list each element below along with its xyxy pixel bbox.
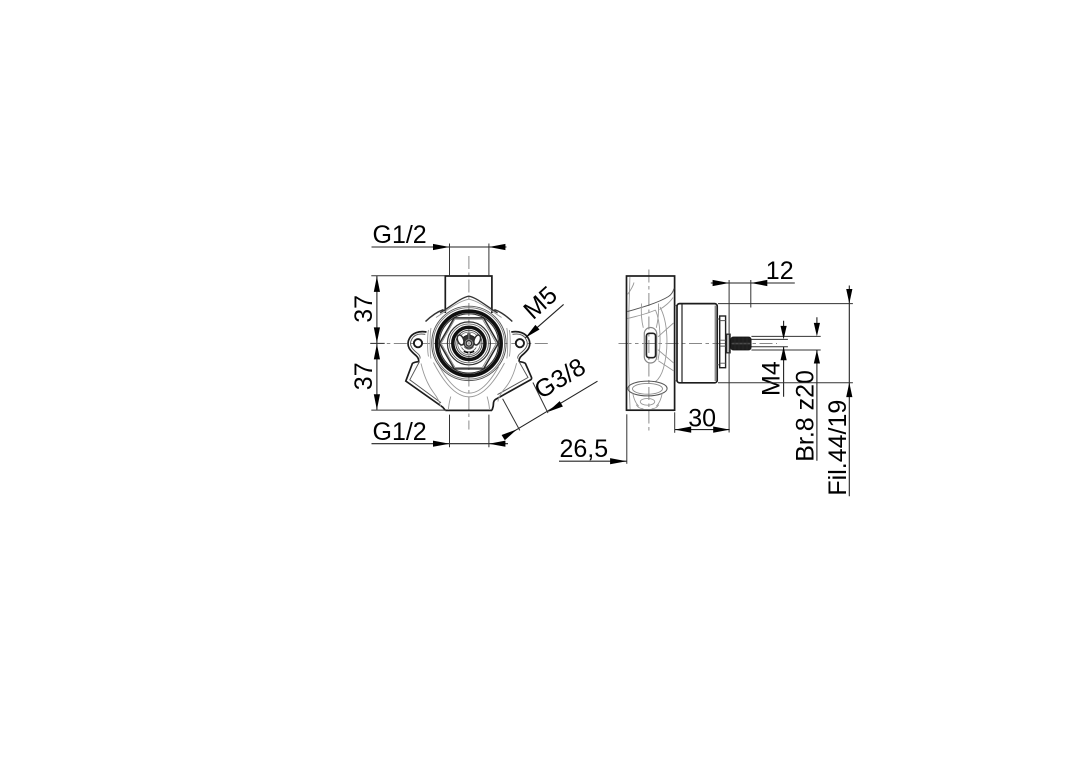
svg-text:37: 37 [350, 295, 378, 323]
svg-text:G1/2: G1/2 [373, 418, 427, 446]
svg-text:Fil.44/19: Fil.44/19 [824, 400, 852, 496]
svg-text:M4: M4 [757, 361, 785, 396]
svg-text:Br.8 z20: Br.8 z20 [791, 370, 819, 462]
svg-text:30: 30 [688, 405, 716, 433]
svg-text:G1/2: G1/2 [373, 221, 427, 249]
svg-text:26,5: 26,5 [560, 435, 609, 463]
svg-text:12: 12 [766, 257, 794, 285]
svg-text:37: 37 [350, 362, 378, 390]
